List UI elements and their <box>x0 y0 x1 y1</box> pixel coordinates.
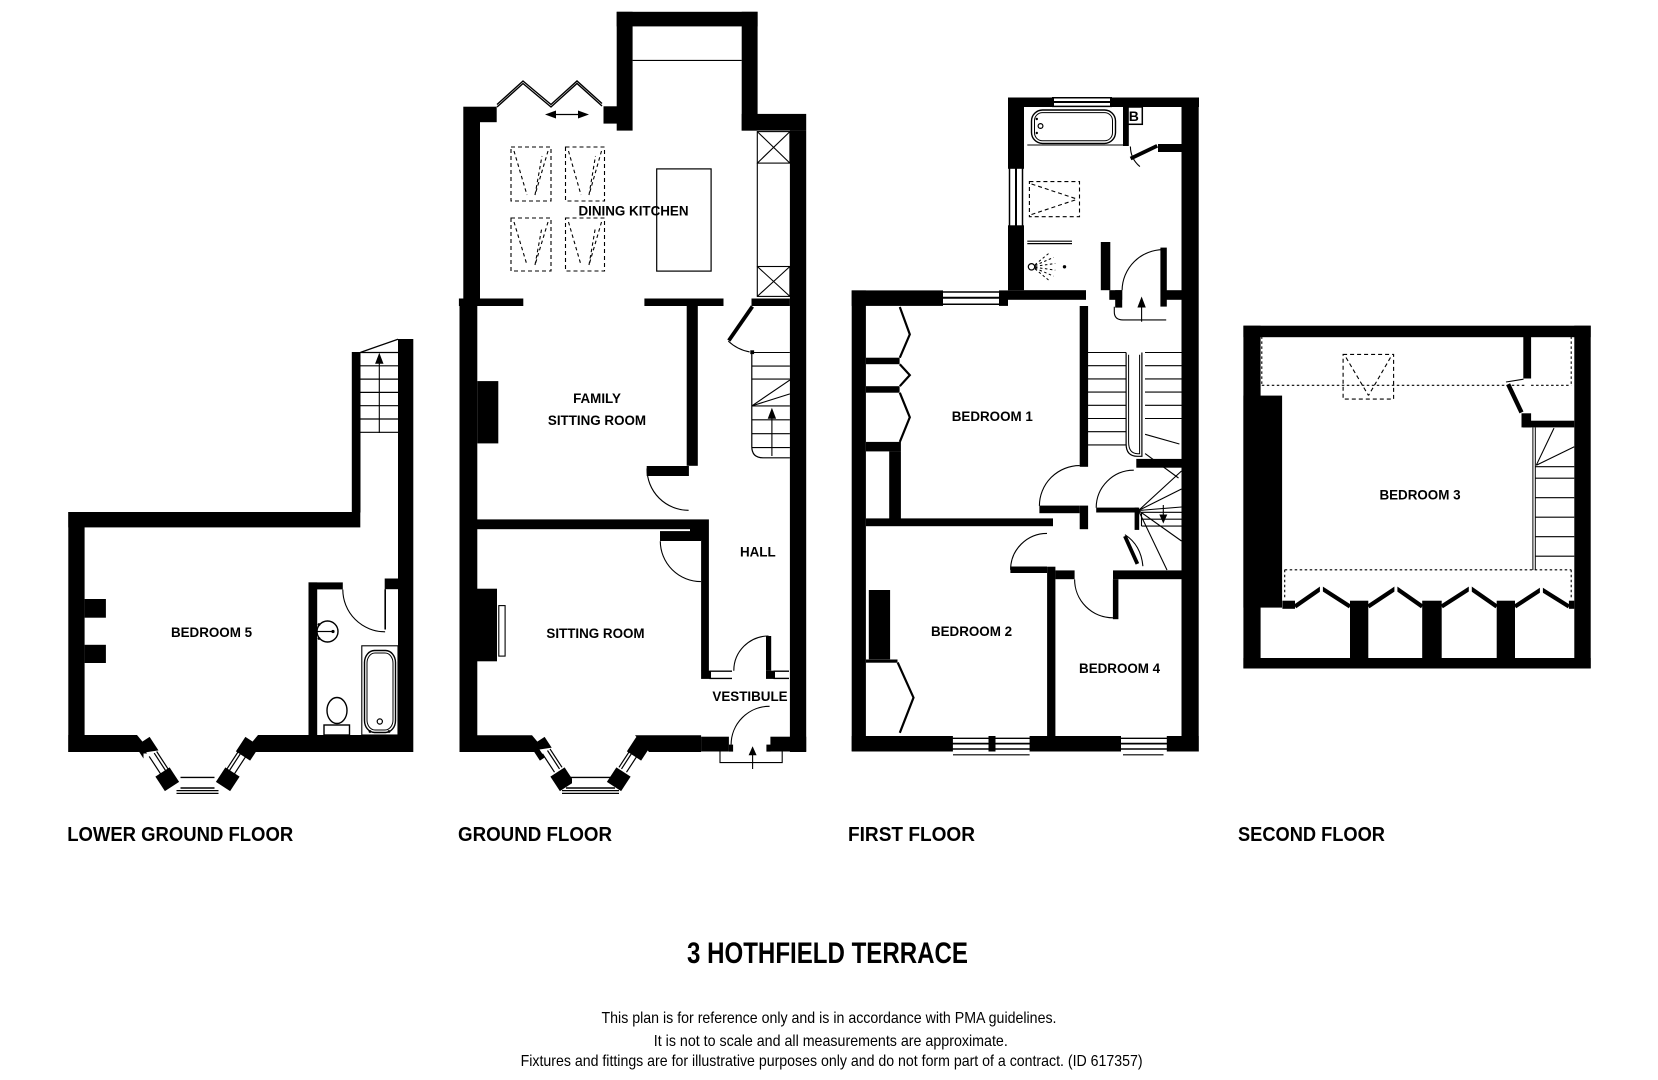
svg-text:BEDROOM 5: BEDROOM 5 <box>171 625 253 640</box>
svg-text:3 HOTHFIELD TERRACE: 3 HOTHFIELD TERRACE <box>687 937 968 970</box>
svg-text:B: B <box>1129 108 1139 124</box>
svg-text:BEDROOM 3: BEDROOM 3 <box>1379 488 1460 503</box>
svg-text:FIRST FLOOR: FIRST FLOOR <box>848 824 976 846</box>
svg-text:GROUND FLOOR: GROUND FLOOR <box>458 824 613 846</box>
svg-text:FAMILY: FAMILY <box>573 391 621 406</box>
svg-text:LOWER GROUND FLOOR: LOWER GROUND FLOOR <box>67 824 294 846</box>
svg-text:HALL: HALL <box>740 545 776 560</box>
svg-text:DINING KITCHEN: DINING KITCHEN <box>578 204 688 219</box>
svg-text:BEDROOM 1: BEDROOM 1 <box>952 409 1034 424</box>
svg-text:SITTING ROOM: SITTING ROOM <box>548 413 646 428</box>
svg-text:SITTING ROOM: SITTING ROOM <box>546 626 644 641</box>
svg-text:BEDROOM 2: BEDROOM 2 <box>931 624 1012 639</box>
svg-text:SECOND FLOOR: SECOND FLOOR <box>1238 824 1385 846</box>
svg-text:It is not to scale and all mea: It is not to scale and all measurements … <box>654 1033 1008 1050</box>
svg-text:Fixtures and fittings are for: Fixtures and fittings are for illustrati… <box>521 1053 1143 1070</box>
svg-text:This plan is for reference onl: This plan is for reference only and is i… <box>602 1010 1057 1027</box>
svg-text:BEDROOM 4: BEDROOM 4 <box>1079 661 1161 676</box>
svg-text:VESTIBULE: VESTIBULE <box>712 689 787 704</box>
